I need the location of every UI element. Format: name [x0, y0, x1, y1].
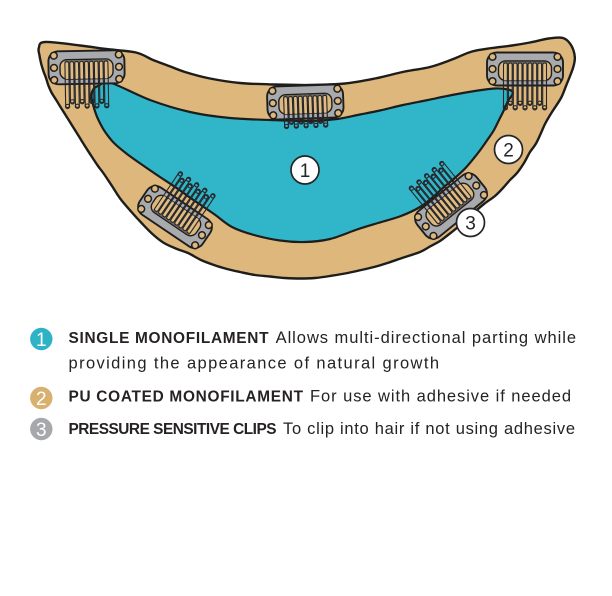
- svg-text:3: 3: [36, 420, 47, 441]
- svg-text:2: 2: [503, 141, 514, 162]
- svg-text:3: 3: [465, 214, 476, 235]
- svg-text:PRESSURE SENSITIVE CLIPS: PRESSURE SENSITIVE CLIPS: [69, 421, 277, 438]
- svg-text:SINGLE MONOFILAMENT: SINGLE MONOFILAMENT: [69, 330, 270, 347]
- svg-text:Allows multi-directional parti: Allows multi-directional parting while: [276, 329, 576, 347]
- svg-text:PU COATED MONOFILAMENT: PU COATED MONOFILAMENT: [69, 389, 304, 406]
- svg-text:For use with adhesive if neede: For use with adhesive if needed: [310, 388, 571, 406]
- svg-text:2: 2: [36, 389, 47, 410]
- svg-text:providing the appearance of na: providing the appearance of natural grow…: [69, 355, 440, 373]
- svg-text:1: 1: [300, 161, 311, 182]
- svg-text:To clip into hair if not using: To clip into hair if not using adhesive: [283, 420, 575, 438]
- svg-text:1: 1: [36, 330, 47, 351]
